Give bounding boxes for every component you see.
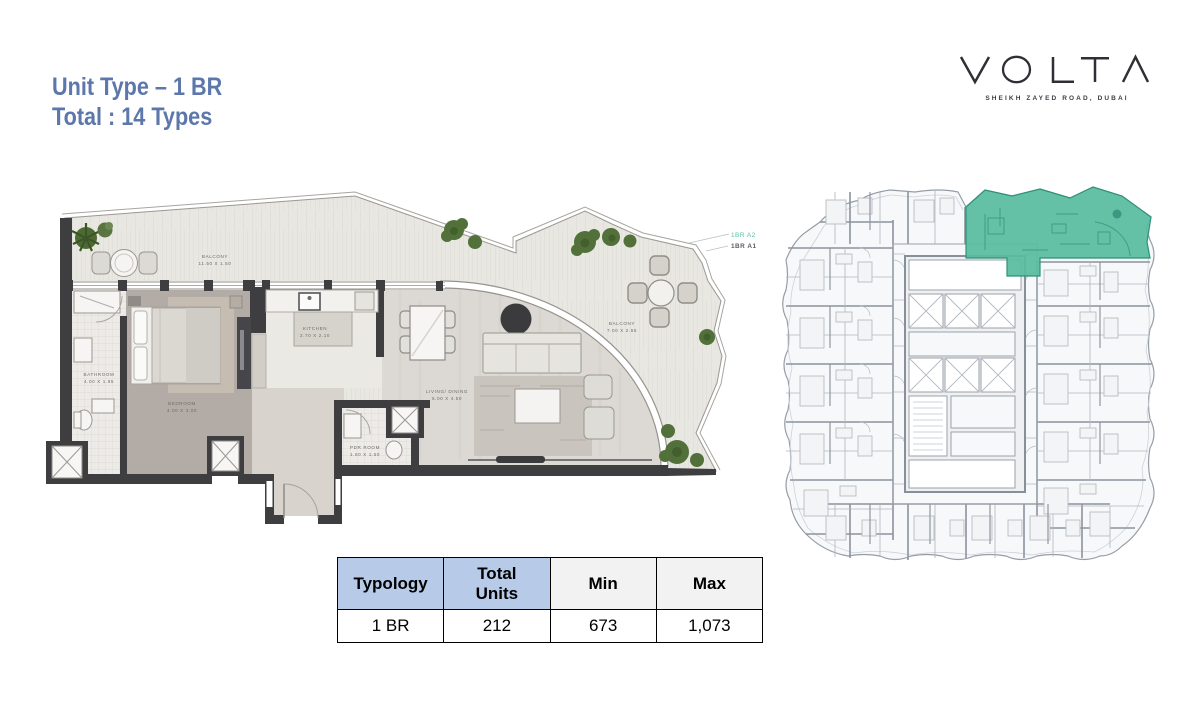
- svg-text:7.00 X 2.55: 7.00 X 2.55: [607, 328, 637, 333]
- svg-text:BEDROOM: BEDROOM: [168, 401, 196, 406]
- svg-text:2.70 X 2.10: 2.70 X 2.10: [300, 333, 330, 338]
- svg-text:SHEIKH ZAYED ROAD, DUBAI: SHEIKH ZAYED ROAD, DUBAI: [985, 95, 1128, 102]
- svg-text:1BR A2: 1BR A2: [731, 232, 756, 239]
- svg-text:1BR A1: 1BR A1: [731, 243, 757, 250]
- svg-text:4.00 X 3.00: 4.00 X 3.00: [167, 408, 197, 413]
- svg-text:LIVING/ DINING: LIVING/ DINING: [426, 389, 468, 394]
- svg-text:BALCONY: BALCONY: [609, 321, 635, 326]
- svg-text:11.50 X 1.50: 11.50 X 1.50: [199, 261, 232, 266]
- svg-text:BATHROOM: BATHROOM: [83, 372, 114, 377]
- svg-text:BALCONY: BALCONY: [202, 254, 228, 259]
- svg-text:KITCHEN: KITCHEN: [303, 326, 327, 331]
- svg-text:4.00 X 1.95: 4.00 X 1.95: [84, 379, 114, 384]
- svg-text:1.60 X 1.50: 1.60 X 1.50: [350, 452, 380, 457]
- svg-text:5.00 X 4.50: 5.00 X 4.50: [432, 396, 462, 401]
- svg-text:PDR ROOM: PDR ROOM: [350, 445, 380, 450]
